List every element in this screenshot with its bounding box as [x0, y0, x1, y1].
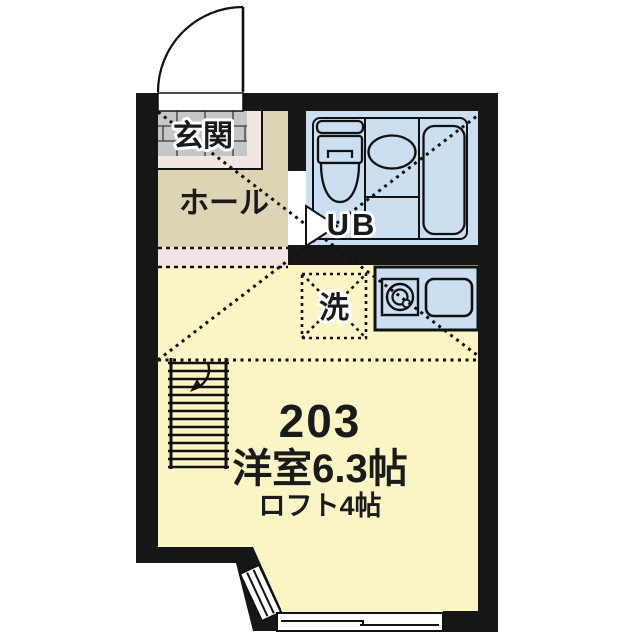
- wall-hall-bath-divider: [288, 111, 306, 171]
- loft-size-label: ロフト4帖: [258, 491, 381, 521]
- washbasin-icon: [369, 136, 416, 169]
- entrance-door-opening: [158, 93, 243, 111]
- hall-label: ホール: [179, 187, 269, 220]
- wall-right: [478, 93, 498, 632]
- toilet-lid-icon: [317, 121, 363, 133]
- wall-bottom-right: [443, 611, 498, 632]
- toilet-tank-icon: [318, 136, 362, 163]
- unit-bath-label: UB: [327, 207, 378, 242]
- bathtub-icon: [424, 126, 465, 234]
- unit-number-label: 203: [279, 395, 362, 447]
- room-size-label: 洋室6.3帖: [232, 447, 408, 491]
- wall-below-bath: [288, 245, 478, 265]
- wall-left: [136, 93, 158, 563]
- floor-plan: 玄関 ホール UB 洗 203 洋室6.3帖 ロフト4帖: [0, 0, 640, 640]
- sliding-window: [277, 613, 443, 631]
- washer-label: 洗: [319, 292, 349, 325]
- entrance-label: 玄関: [173, 119, 233, 153]
- hall-step-strip: [158, 247, 288, 268]
